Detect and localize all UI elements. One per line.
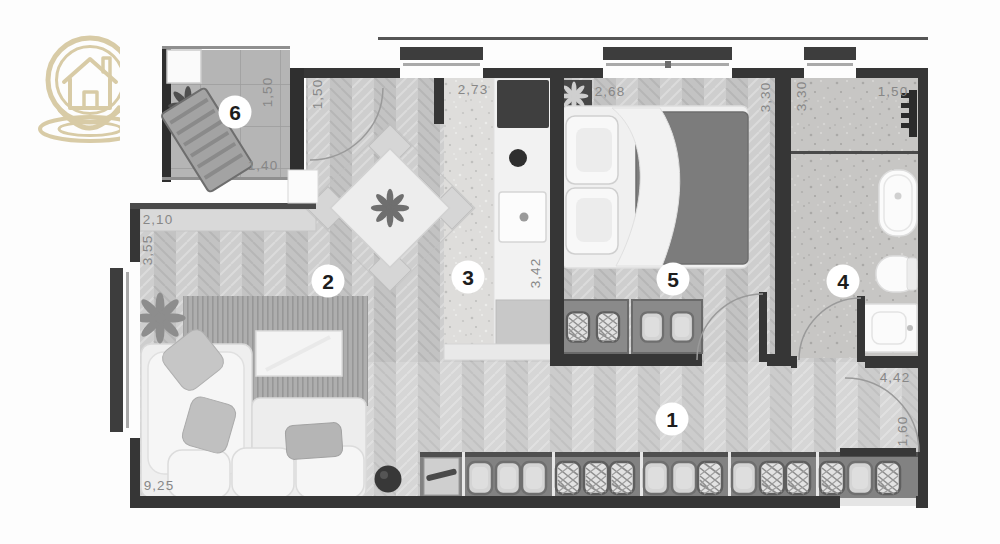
shoe-bench bbox=[424, 458, 459, 495]
badge-room-4-bathroom: 4 bbox=[827, 265, 860, 298]
dim-bathroom-width: 1,50 bbox=[878, 84, 908, 99]
toilet-tank bbox=[907, 258, 917, 290]
entrance-door-leaf bbox=[840, 448, 916, 456]
dim-kitchen-depth: 3,42 bbox=[528, 258, 543, 288]
badge-label-2: 2 bbox=[322, 270, 334, 293]
badge-room-6-balcony: 6 bbox=[219, 96, 252, 129]
bedroom-door-leaf bbox=[759, 292, 767, 362]
kitchen-sink-round bbox=[509, 149, 527, 167]
kitchen-lower-cabinet bbox=[496, 300, 550, 344]
dining-table-plant bbox=[371, 189, 409, 227]
wall-end-block bbox=[288, 170, 318, 203]
dim-bathroom-depth: 3,30 bbox=[794, 81, 809, 111]
dim-kitchen-width: 2,73 bbox=[458, 82, 488, 97]
dim-bedroom-width: 2,68 bbox=[595, 84, 625, 99]
dim-balcony-width: 1,40 bbox=[248, 158, 278, 173]
pouf bbox=[375, 466, 402, 493]
badge-label-1: 1 bbox=[666, 408, 678, 431]
wardrobe-items bbox=[468, 462, 900, 494]
dim-entrance-door: 1,60 bbox=[895, 416, 910, 446]
bathroom-door-leaf bbox=[857, 296, 865, 362]
pouf-highlight bbox=[380, 471, 388, 479]
floor-plan-canvas: 2,10 3,55 9,25 1,50 1,40 1,50 2,73 3,42 … bbox=[0, 0, 1000, 544]
balcony-door-band bbox=[290, 68, 304, 170]
living-plant bbox=[134, 292, 185, 343]
shower-screen-line bbox=[791, 151, 918, 154]
entrance-threshold bbox=[840, 498, 916, 506]
badge-label-5: 5 bbox=[667, 268, 679, 291]
window-top-2 bbox=[603, 44, 732, 78]
sofa-cushion-1 bbox=[168, 450, 230, 498]
kitchen-faucet bbox=[520, 213, 529, 222]
dim-balcony-door: 1,50 bbox=[310, 79, 325, 109]
floor-plan-page: 2,10 3,55 9,25 1,50 1,40 1,50 2,73 3,42 … bbox=[0, 0, 1000, 544]
balcony-ac-unit bbox=[167, 50, 201, 83]
cooktop bbox=[497, 80, 549, 128]
badge-room-1-hallway: 1 bbox=[656, 403, 689, 436]
rug-fringe-top bbox=[183, 296, 368, 303]
window-top-3 bbox=[804, 44, 856, 78]
window-top-1 bbox=[400, 44, 483, 78]
facade-line bbox=[378, 37, 928, 40]
dim-balcony-depth: 1,50 bbox=[260, 77, 275, 107]
balcony-top-edge bbox=[162, 46, 290, 49]
bathtub-drain bbox=[895, 193, 902, 200]
badge-label-3: 3 bbox=[462, 266, 474, 289]
sofa-cushion-2 bbox=[232, 448, 294, 498]
dim-living-top: 2,10 bbox=[143, 212, 173, 227]
badge-room-5-bedroom: 5 bbox=[657, 263, 690, 296]
window-left bbox=[104, 262, 140, 438]
house-icon bbox=[64, 58, 116, 108]
dim-living-left: 3,55 bbox=[140, 235, 155, 265]
hallway-wardrobe bbox=[420, 452, 918, 498]
dim-living-bottom: 9,25 bbox=[144, 478, 174, 493]
dim-bedroom-depth: 3,30 bbox=[758, 82, 773, 112]
badge-label-6: 6 bbox=[229, 101, 241, 124]
badge-room-2-living: 2 bbox=[312, 265, 345, 298]
kitchen-base-strip bbox=[444, 344, 552, 360]
badge-label-4: 4 bbox=[837, 270, 849, 293]
vanity-faucet bbox=[907, 325, 913, 331]
dim-hallway-width: 4,42 bbox=[880, 370, 910, 385]
badge-room-3-kitchen: 3 bbox=[452, 261, 485, 294]
sofa-pillow-3 bbox=[285, 422, 343, 460]
